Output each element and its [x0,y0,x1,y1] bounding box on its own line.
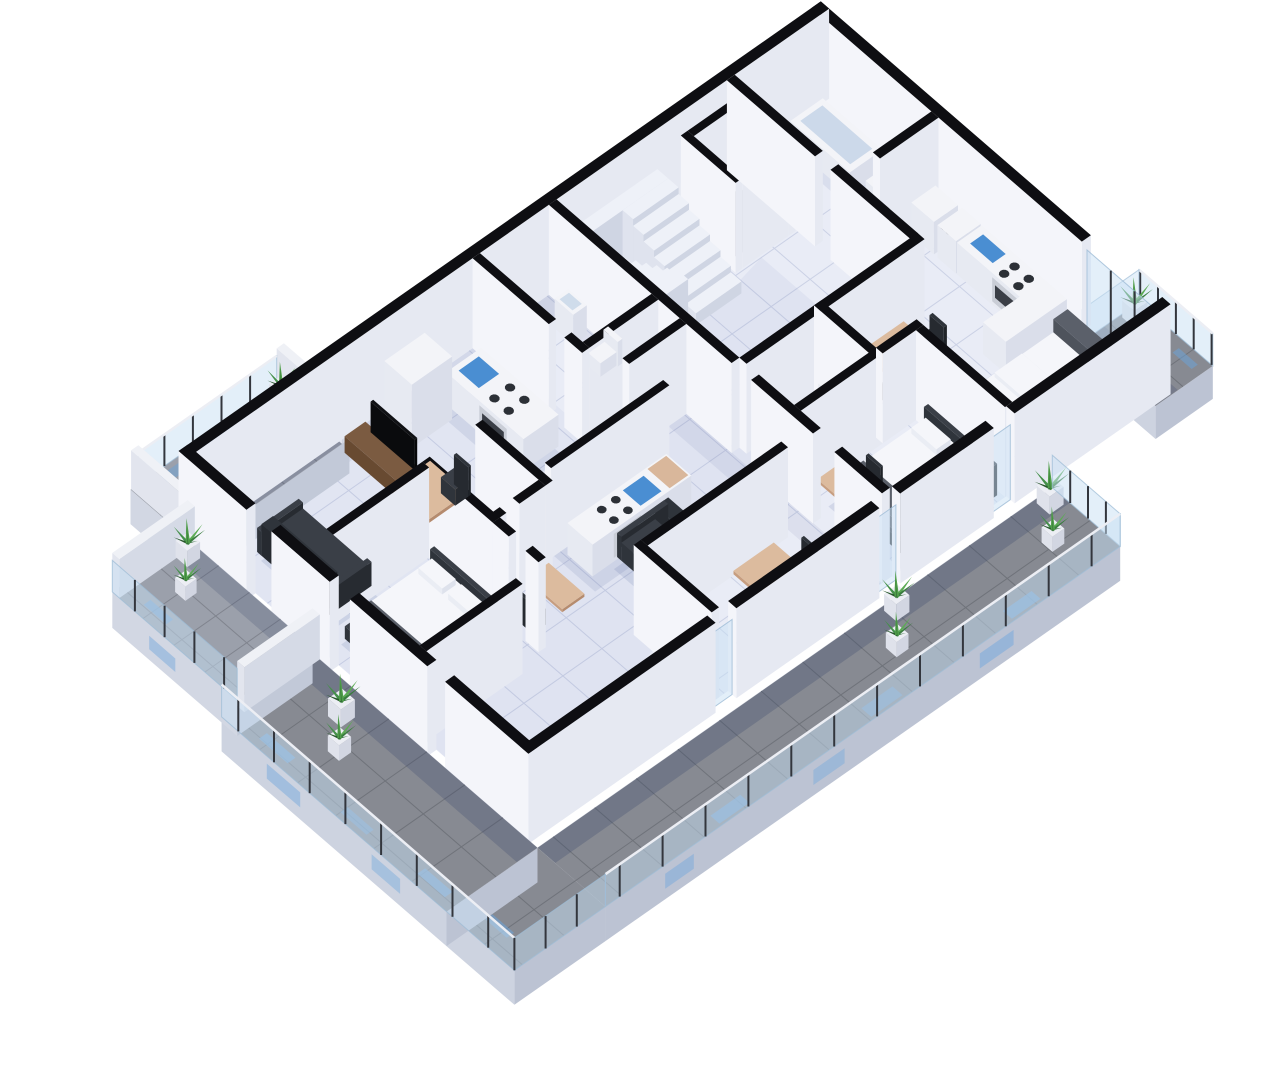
burner-b-1 [505,384,515,392]
burner-a-1 [1009,263,1019,271]
floor-plan-page [0,0,1269,1081]
burner-a-4 [1013,282,1023,290]
burner-a-2 [1024,275,1034,283]
floor-plan-3d-render [0,0,1269,1081]
wall-bath-c-s-2 [564,332,589,443]
wall-bedroom-b-n-2 [526,546,546,653]
burner-d-1 [611,496,621,504]
burner-b-2 [519,396,529,404]
burner-a-3 [999,270,1009,278]
burner-b-4 [504,407,514,415]
